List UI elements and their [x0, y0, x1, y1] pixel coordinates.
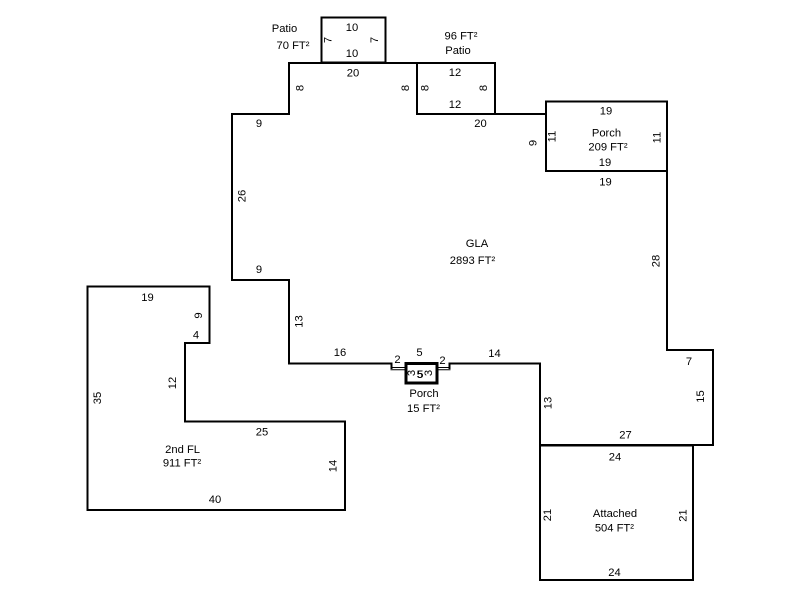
svg-text:9: 9	[193, 312, 205, 318]
svg-text:Porch: Porch	[409, 388, 438, 400]
svg-text:9: 9	[256, 264, 262, 276]
svg-text:26: 26	[237, 190, 249, 202]
svg-text:35: 35	[92, 392, 104, 404]
svg-text:14: 14	[488, 348, 500, 360]
svg-text:19: 19	[599, 177, 611, 189]
svg-text:911 FT²: 911 FT²	[163, 458, 202, 470]
svg-text:27: 27	[619, 430, 631, 442]
svg-text:2893 FT²: 2893 FT²	[450, 255, 496, 267]
svg-text:10: 10	[346, 22, 358, 34]
svg-text:96 FT²: 96 FT²	[445, 31, 478, 43]
svg-text:8: 8	[400, 85, 412, 91]
svg-text:28: 28	[651, 255, 663, 267]
svg-text:7: 7	[369, 37, 381, 43]
svg-text:2: 2	[394, 354, 400, 366]
svg-text:8: 8	[295, 85, 307, 91]
svg-text:13: 13	[294, 315, 306, 327]
svg-text:Attached: Attached	[593, 508, 637, 520]
svg-text:5: 5	[416, 347, 422, 359]
svg-text:12: 12	[449, 99, 461, 111]
svg-text:13: 13	[543, 397, 555, 409]
svg-text:15: 15	[695, 390, 707, 402]
svg-text:7: 7	[686, 356, 692, 368]
svg-text:70 FT²: 70 FT²	[277, 40, 310, 52]
svg-text:12: 12	[449, 67, 461, 79]
svg-text:14: 14	[328, 460, 340, 472]
svg-text:GLA: GLA	[466, 238, 489, 250]
svg-text:9: 9	[528, 140, 540, 146]
svg-text:19: 19	[599, 157, 611, 169]
svg-text:209 FT²: 209 FT²	[588, 142, 627, 154]
svg-text:8: 8	[478, 85, 490, 91]
svg-text:40: 40	[209, 494, 221, 506]
svg-text:4: 4	[193, 330, 199, 342]
svg-text:Patio: Patio	[272, 23, 298, 35]
svg-text:11: 11	[652, 132, 664, 144]
svg-text:20: 20	[474, 118, 486, 130]
svg-text:3: 3	[423, 370, 435, 376]
svg-text:21: 21	[678, 509, 690, 521]
svg-text:25: 25	[256, 427, 268, 439]
svg-text:11: 11	[547, 131, 559, 143]
svg-text:8: 8	[420, 85, 432, 91]
svg-text:19: 19	[600, 106, 612, 118]
svg-text:2: 2	[439, 355, 445, 367]
svg-text:20: 20	[347, 68, 359, 80]
svg-text:Patio: Patio	[445, 45, 471, 57]
svg-text:Porch: Porch	[592, 127, 621, 139]
svg-text:19: 19	[141, 292, 153, 304]
svg-text:9: 9	[256, 118, 262, 130]
svg-text:24: 24	[608, 567, 620, 579]
svg-text:10: 10	[346, 48, 358, 60]
svg-text:21: 21	[542, 509, 554, 521]
svg-text:24: 24	[609, 452, 621, 464]
svg-text:2nd FL: 2nd FL	[165, 444, 200, 456]
svg-text:12: 12	[167, 377, 179, 389]
svg-text:15 FT²: 15 FT²	[407, 403, 440, 415]
svg-text:16: 16	[334, 347, 346, 359]
svg-text:7: 7	[323, 37, 335, 43]
svg-text:504 FT²: 504 FT²	[595, 522, 634, 534]
